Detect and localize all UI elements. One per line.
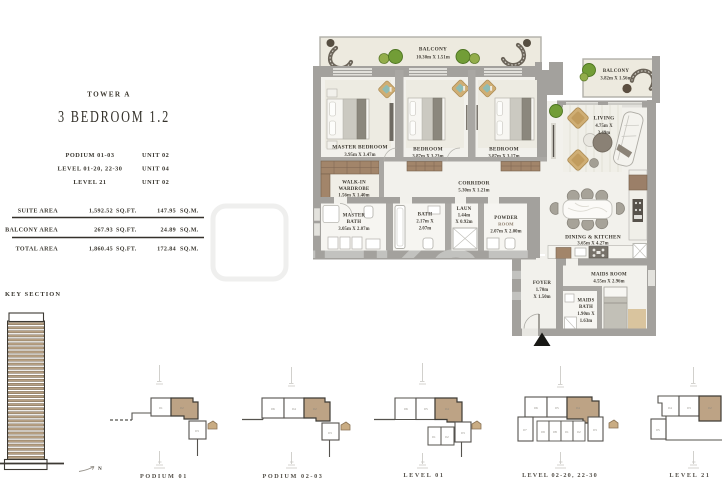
svg-text:TOTAL AREA: TOTAL AREA	[16, 247, 59, 253]
svg-text:172.84: 172.84	[157, 247, 176, 253]
svg-text:3.05m X 2.07m: 3.05m X 2.07m	[338, 227, 369, 232]
svg-text:06: 06	[404, 407, 408, 411]
svg-text:BATH: BATH	[579, 305, 593, 310]
svg-text:3.82m X 1.56m: 3.82m X 1.56m	[600, 77, 631, 82]
svg-text:BEDROOM: BEDROOM	[413, 147, 443, 153]
svg-text:BATH: BATH	[418, 213, 433, 218]
svg-text:1.44m: 1.44m	[458, 214, 471, 219]
svg-text:04: 04	[292, 407, 296, 411]
svg-text:03: 03	[687, 406, 691, 410]
svg-text:BATH: BATH	[347, 220, 362, 225]
svg-text:ROOM: ROOM	[498, 222, 514, 227]
svg-text:MAIDS ROOM: MAIDS ROOM	[591, 273, 627, 278]
svg-text:CORRIDOR: CORRIDOR	[458, 181, 489, 187]
svg-text:02: 02	[180, 406, 184, 410]
svg-text:3.65m X 4.27m: 3.65m X 4.27m	[577, 242, 608, 247]
svg-text:2.17m X: 2.17m X	[416, 220, 434, 225]
svg-text:SUITE AREA: SUITE AREA	[18, 209, 58, 215]
svg-text:UNIT 02: UNIT 02	[142, 179, 169, 186]
svg-text:MASTER: MASTER	[343, 214, 366, 219]
svg-text:UNIT 04: UNIT 04	[142, 166, 170, 173]
svg-text:SQ.M.: SQ.M.	[180, 209, 199, 215]
svg-text:MASTER BEDROOM: MASTER BEDROOM	[332, 145, 387, 151]
svg-text:147.95: 147.95	[157, 209, 176, 215]
svg-text:02: 02	[708, 406, 712, 410]
svg-text:N: N	[98, 466, 102, 472]
svg-text:05: 05	[555, 406, 559, 410]
svg-text:03: 03	[461, 431, 465, 435]
svg-text:BEDROOM: BEDROOM	[489, 147, 519, 153]
svg-text:3 BEDROOM 1.2: 3 BEDROOM 1.2	[58, 107, 170, 126]
svg-text:LEVEL 21: LEVEL 21	[669, 472, 710, 479]
svg-text:SQ.FT.: SQ.FT.	[116, 228, 137, 234]
svg-text:FOYER: FOYER	[533, 281, 552, 286]
svg-text:PODIUM 02-03: PODIUM 02-03	[263, 473, 324, 480]
svg-text:2.07m X 2.00m: 2.07m X 2.00m	[490, 230, 521, 235]
svg-text:07: 07	[523, 428, 527, 432]
svg-text:SQ.FT.: SQ.FT.	[116, 209, 137, 215]
svg-text:PODIUM 01: PODIUM 01	[140, 473, 188, 480]
svg-text:1,860.45: 1,860.45	[89, 247, 113, 253]
svg-text:MAIDS: MAIDS	[578, 299, 595, 304]
svg-text:UNIT 02: UNIT 02	[142, 152, 169, 159]
svg-text:10.30m X 1.51m: 10.30m X 1.51m	[416, 56, 450, 61]
svg-text:POWDER: POWDER	[494, 216, 518, 221]
svg-text:SQ.M.: SQ.M.	[180, 247, 199, 253]
svg-text:DINING & KITCHEN: DINING & KITCHEN	[565, 235, 621, 241]
svg-text:BALCONY AREA: BALCONY AREA	[5, 228, 58, 234]
svg-text:1.63m: 1.63m	[580, 319, 593, 324]
svg-text:04: 04	[445, 407, 449, 411]
svg-text:02: 02	[313, 407, 317, 411]
svg-text:1.90m X: 1.90m X	[577, 312, 595, 317]
svg-text:PODIUM 01-03: PODIUM 01-03	[65, 152, 114, 159]
svg-text:LIVING: LIVING	[594, 116, 615, 122]
svg-text:4.75m X: 4.75m X	[595, 124, 613, 129]
svg-text:08: 08	[553, 430, 557, 434]
svg-text:03: 03	[195, 429, 199, 433]
svg-text:05: 05	[656, 428, 660, 432]
svg-text:LEVEL 02-20, 22-30: LEVEL 02-20, 22-30	[522, 472, 598, 479]
svg-text:TOWER A: TOWER A	[87, 91, 131, 99]
svg-text:5.30m X 1.21m: 5.30m X 1.21m	[458, 189, 489, 194]
svg-text:06: 06	[534, 406, 538, 410]
svg-text:4.55m X 2.96m: 4.55m X 2.96m	[593, 280, 624, 285]
svg-text:03: 03	[593, 428, 597, 432]
svg-text:LEVEL 21: LEVEL 21	[73, 179, 106, 186]
svg-text:SQ.M.: SQ.M.	[180, 228, 199, 234]
svg-text:24.89: 24.89	[161, 228, 176, 234]
svg-text:BALCONY: BALCONY	[603, 69, 629, 74]
svg-text:BALCONY: BALCONY	[419, 47, 447, 53]
svg-text:03: 03	[328, 431, 332, 435]
svg-text:02: 02	[445, 435, 449, 439]
svg-text:1,592.52: 1,592.52	[89, 209, 113, 215]
svg-text:KEY SECTION: KEY SECTION	[5, 291, 61, 298]
svg-text:3.49m: 3.49m	[598, 131, 611, 136]
svg-text:267.93: 267.93	[94, 228, 113, 234]
svg-text:04: 04	[668, 406, 672, 410]
svg-text:1.70m: 1.70m	[536, 288, 549, 293]
svg-text:LEVEL 01: LEVEL 01	[403, 472, 444, 479]
svg-text:09: 09	[541, 430, 545, 434]
svg-text:X 1.50m: X 1.50m	[533, 295, 550, 300]
svg-text:WALK-IN: WALK-IN	[342, 181, 366, 186]
svg-text:01: 01	[432, 435, 436, 439]
svg-text:WARDROBE: WARDROBE	[339, 187, 370, 192]
svg-text:05: 05	[424, 407, 428, 411]
svg-text:X 0.92m: X 0.92m	[455, 220, 472, 225]
svg-text:02: 02	[577, 430, 581, 434]
svg-text:2.07m: 2.07m	[419, 227, 432, 232]
svg-text:LAUN: LAUN	[457, 207, 472, 212]
svg-text:SQ.FT.: SQ.FT.	[116, 247, 137, 253]
svg-text:01: 01	[565, 430, 569, 434]
svg-text:04: 04	[576, 406, 580, 410]
svg-text:LEVEL 01-20, 22-30: LEVEL 01-20, 22-30	[57, 166, 122, 173]
svg-text:01: 01	[159, 406, 163, 410]
svg-text:06: 06	[271, 407, 275, 411]
